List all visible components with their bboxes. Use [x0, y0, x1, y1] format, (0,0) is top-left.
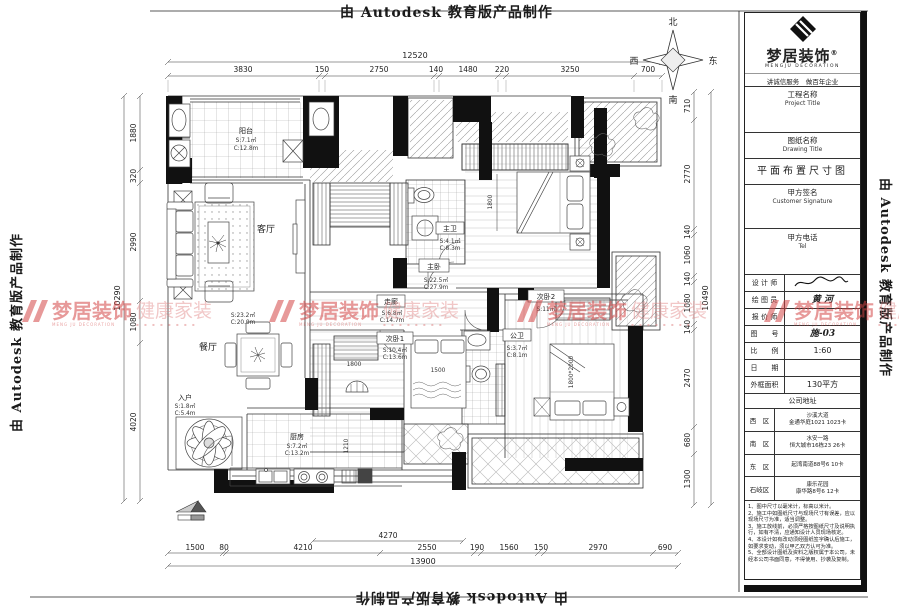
svg-text:C:8.1m: C:8.1m — [507, 353, 528, 359]
dim-label: 690 — [658, 543, 673, 552]
dim-label: 10490 — [701, 285, 710, 310]
dim-label: 1080 — [129, 312, 138, 331]
nightstand-icon — [570, 156, 590, 171]
autodesk-watermark-right: 由 Autodesk 教育版产品制作 — [877, 178, 896, 377]
autodesk-watermark-left: 由 Autodesk 教育版产品制作 — [6, 233, 25, 432]
compass-rose: 北 南 西 东 — [629, 17, 717, 106]
svg-text:C:8.3m: C:8.3m — [440, 246, 461, 252]
stove-icon — [294, 469, 334, 484]
svg-text:C:12.8m: C:12.8m — [234, 146, 259, 152]
address-row: 南 区 水安一路恒大城市16栋23 26卡 — [745, 432, 860, 455]
nightstand-icon — [534, 398, 550, 416]
dim-label: 1060 — [683, 245, 692, 264]
kitchen-sink-icon — [256, 469, 290, 485]
sofa-icon — [167, 202, 193, 287]
svg-text:S:7.1㎡: S:7.1㎡ — [236, 136, 257, 144]
dim-label: 2470 — [683, 368, 692, 387]
room-label-bedroom3: 次卧2 — [537, 292, 555, 301]
company-logo-block: 梦居装饰® MENGJU DECORATION 讲诚信服务 做百年企业 — [745, 13, 860, 87]
dim-label: 320 — [129, 169, 138, 184]
dim-label: 1300 — [683, 469, 692, 488]
room-label-kitchen: 厨房 — [290, 432, 304, 441]
dim-label: 3250 — [560, 65, 579, 74]
toilet-icon — [464, 366, 490, 382]
dim-label: 2550 — [417, 543, 436, 552]
dim-label: 680 — [683, 433, 692, 448]
company-logo-icon — [786, 16, 820, 42]
dim-label: 1800 — [488, 194, 494, 209]
compass-north-label: 北 — [668, 17, 677, 28]
svg-text:C:27.9m: C:27.9m — [424, 285, 449, 291]
svg-text:C:14.7m: C:14.7m — [380, 318, 405, 324]
note-item: 2、施工中如图纸尺寸与现场尺寸有误差，应以现场尺寸为准，适当调整。 — [748, 511, 857, 524]
room-label-entry: 入户 — [178, 393, 192, 402]
tv-cabinet-icon — [293, 200, 305, 273]
note-item: 1、图中尺寸以毫米计，标高以米计。 — [748, 504, 857, 511]
table-row: 绘 图 员 黄 河 — [745, 292, 860, 309]
autodesk-watermark-top: 由 Autodesk 教育版产品制作 — [340, 2, 553, 22]
company-slogan: 讲诚信服务 做百年企业 — [745, 73, 860, 86]
svg-text:S:6.8㎡: S:6.8㎡ — [382, 309, 403, 317]
dim-label: 3830 — [233, 65, 252, 74]
title-block: 梦居装饰® MENGJU DECORATION 讲诚信服务 做百年企业 工程名称… — [744, 12, 861, 580]
svg-text:S:22.5㎡: S:22.5㎡ — [424, 276, 449, 284]
svg-text:C:13.2m: C:13.2m — [285, 451, 310, 457]
bath-sink-icon — [464, 331, 490, 350]
autodesk-watermark-bottom: 由 Autodesk 教育版产品制作 — [355, 588, 568, 608]
dim-label: 4270 — [378, 531, 397, 540]
drawing-sheet: 阳台 S:7.1㎡ C:12.8m 客厅 S:23.2㎡ C:20.9m 餐厅 … — [0, 0, 899, 605]
dim-label: 140 — [683, 272, 692, 287]
dim-label: 12520 — [402, 51, 427, 60]
table-row: 外框面积 130平方 — [745, 377, 860, 394]
dim-label: 1480 — [458, 65, 477, 74]
dim-label: 1560 — [499, 543, 518, 552]
note-item: 3、施工放线前，必须严格按图纸尺寸及说明执行，如有不清，应通知设计人员现场核定。 — [748, 524, 857, 537]
dim-label: 220 — [495, 65, 510, 74]
room-label-public-bath: 公卫 — [510, 332, 524, 340]
svg-text:C:13.6m: C:13.6m — [383, 355, 408, 361]
room-label-living: 客厅 — [257, 223, 275, 235]
dim-label: 1500 — [431, 368, 446, 374]
armchair-icon — [205, 183, 233, 203]
svg-text:C:5.4m: C:5.4m — [175, 411, 196, 417]
room-label-balcony: 阳台 — [239, 126, 253, 135]
dim-label: 13900 — [410, 557, 435, 566]
svg-text:S:1.8㎡: S:1.8㎡ — [175, 402, 196, 410]
dim-label: 4210 — [293, 543, 312, 552]
note-item: 4、本设计如有改动须经图纸签字确认后施工，如要求变动，须以甲乙双方认可为准。 — [748, 537, 857, 550]
room-label-master-bath: 主卫 — [443, 224, 457, 233]
notes-block: 1、图中尺寸以毫米计，标高以米计。 2、施工中如图纸尺寸与现场尺寸有误差，应以现… — [745, 501, 860, 581]
address-row: 东 区 起湾南道88号6 10卡 — [745, 455, 860, 477]
address-row: 西 区 沙溪大道金通华庭1021 1023卡 — [745, 409, 860, 432]
dim-label: 10290 — [113, 285, 122, 310]
designer-signature — [785, 275, 860, 291]
dim-label: 710 — [683, 99, 692, 114]
dim-label: 4020 — [129, 412, 138, 431]
table-row: 日 期 — [745, 360, 860, 377]
dim-label: 150 — [315, 65, 330, 74]
room-label-dining: 餐厅 — [199, 341, 217, 353]
company-name: 梦居装饰® — [745, 46, 860, 64]
dim-label: 1800*2000 — [569, 355, 575, 388]
project-title-field: 工程名称 Project Title — [745, 87, 860, 133]
room-label-bedroom2: 次卧1 — [386, 334, 404, 343]
compass-east-label: 东 — [708, 55, 717, 67]
svg-text:S:11㎡: S:11㎡ — [537, 305, 556, 313]
compass-west-label: 西 — [629, 56, 638, 67]
dim-label: 1800 — [347, 362, 362, 368]
dim-label: 1210 — [344, 438, 350, 453]
dim-label: 140 — [683, 225, 692, 240]
dim-label: 140 — [429, 65, 444, 74]
company-address-label: 公司地址 — [745, 394, 860, 409]
dim-label: 2750 — [369, 65, 388, 74]
section-marker-icon — [176, 501, 206, 520]
bed-bedroom3 — [550, 344, 614, 420]
bed-master — [517, 172, 590, 233]
coffee-table-icon — [208, 222, 229, 263]
table-row: 比 例 1:60 — [745, 343, 860, 360]
svg-text:S:7.2㎡: S:7.2㎡ — [287, 442, 308, 450]
kitchen-counter — [230, 468, 402, 486]
room-label-master: 主卧 — [427, 262, 441, 271]
dining-table-icon — [225, 322, 292, 389]
room-label-corridor: 走廊 — [384, 297, 398, 306]
svg-text:S:4.1㎡: S:4.1㎡ — [440, 237, 461, 245]
toilet-icon — [408, 188, 434, 204]
dim-label: 700 — [641, 65, 656, 74]
dim-label: 140 — [683, 320, 692, 335]
company-name-en: MENGJU DECORATION — [745, 64, 860, 70]
nightstand-icon — [570, 234, 590, 250]
appliance-icon — [283, 140, 303, 162]
customer-tel-field: 甲方电话 Tel — [745, 229, 860, 275]
table-row: 报 价 师 — [745, 309, 860, 326]
dim-label: 1500 — [185, 543, 204, 552]
address-row: 石岐区 康乐花园康华路8号6 12卡 — [745, 477, 860, 501]
washing-machine-icon — [169, 140, 190, 167]
dim-label: 190 — [470, 543, 485, 552]
nightstand-icon — [614, 398, 629, 416]
svg-text:S:23.2㎡: S:23.2㎡ — [231, 311, 256, 319]
dim-label: 80 — [219, 543, 229, 552]
washbasin-icon — [169, 104, 190, 137]
dim-label: 1080 — [683, 293, 692, 312]
table-row: 设 计 师 — [745, 275, 860, 292]
customer-signature-field: 甲方签名 Customer Signature — [745, 185, 860, 229]
dim-label: 2970 — [588, 543, 607, 552]
dim-label: 150 — [534, 543, 549, 552]
svg-text:C:20.9m: C:20.9m — [231, 320, 256, 326]
table-row: 图 号 施-03 — [745, 326, 860, 343]
dim-label: 1880 — [129, 123, 138, 142]
bath-sink-icon — [412, 216, 438, 240]
note-item: 5、全部设计图纸及资料之版权属于本公司，未经本公司书面同意，不得使用、抄袭及复制… — [748, 550, 857, 563]
drawing-info-table: 设 计 师 绘 图 员 黄 河 报 价 师 图 号 施-03 比 例 1:60 … — [745, 275, 860, 394]
drawing-title: 平面布置尺寸图 — [745, 159, 860, 185]
compass-south-label: 南 — [668, 94, 677, 106]
svg-text:S:3.7㎡: S:3.7㎡ — [507, 344, 528, 352]
drawing-title-label: 图纸名称 Drawing Title — [745, 133, 860, 159]
svg-text:S:10.4㎡: S:10.4㎡ — [383, 346, 408, 354]
dim-label: 2770 — [683, 164, 692, 183]
dim-label: 2990 — [129, 232, 138, 251]
